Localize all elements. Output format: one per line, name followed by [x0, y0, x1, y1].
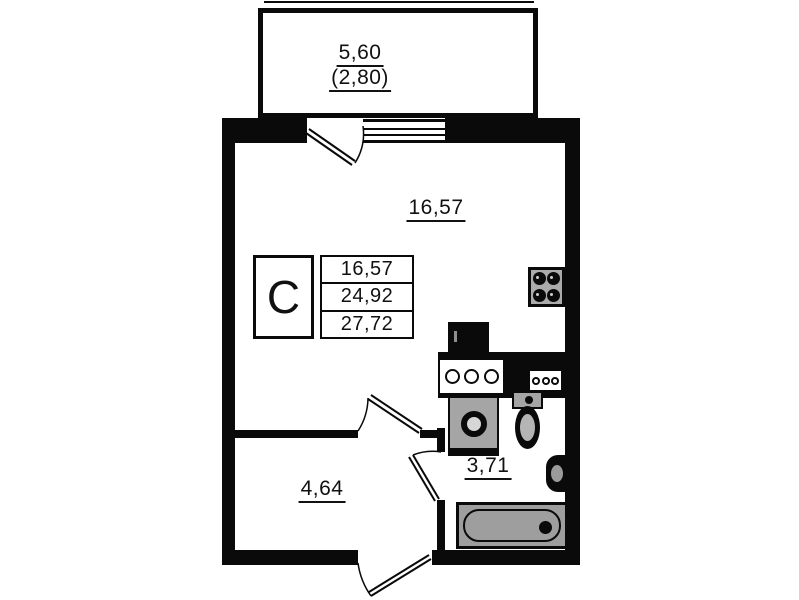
toilet-bowl-inner [520, 414, 535, 441]
wall-top-right [445, 118, 580, 143]
wall-bottom-right [432, 550, 580, 565]
apartment-type-badge: C [253, 255, 314, 339]
floor-plan: 5,60 (2,80) 16,57 4,64 3,71 C 16,57 24,9… [0, 0, 799, 600]
wall-bathroom-west-stub [437, 428, 445, 452]
stove-burner [533, 289, 546, 302]
stove-burner [547, 272, 560, 285]
kitchen-sink-icon [448, 322, 489, 352]
wall-right [565, 118, 580, 565]
balcony-door [306, 126, 364, 165]
washbasin-bowl [551, 465, 563, 482]
kitchen-sink-tap [454, 331, 457, 342]
hallway-area-label: 4,64 [299, 477, 346, 503]
legend-apartment-area: 24,92 [320, 282, 414, 311]
ventilation-shaft-left [438, 358, 505, 395]
washing-machine-icon [448, 396, 499, 456]
balcony [258, 8, 538, 118]
stove-burner [547, 289, 560, 302]
vent-duct [532, 377, 540, 385]
wall-hallway [235, 430, 358, 438]
bathroom-door [409, 451, 441, 501]
vent-duct [542, 377, 550, 385]
ventilation-shaft-right [528, 369, 563, 392]
toilet-flush-button [525, 396, 533, 404]
vent-duct [484, 369, 499, 384]
wall-hallway-jamb [420, 430, 437, 438]
toilet-icon [515, 406, 540, 449]
wall-bathroom-west [437, 500, 445, 552]
bathroom-area-label: 3,71 [465, 454, 512, 480]
window-pane-line [363, 128, 445, 130]
washbasin-icon [546, 455, 568, 492]
balcony-parapet-line [264, 1, 534, 3]
wall-left [222, 118, 235, 565]
living-room-area-label: 16,57 [406, 196, 465, 222]
legend-living-area: 16,57 [320, 255, 414, 284]
vent-duct [464, 369, 479, 384]
wall-bottom-left [222, 550, 358, 565]
window [363, 119, 445, 143]
bathtub-drain [539, 521, 552, 534]
legend-total-area: 27,72 [320, 310, 414, 339]
entrance-door [358, 555, 431, 596]
washing-machine-base [450, 448, 497, 454]
balcony-area-coefficient-label: (2,80) [329, 66, 391, 92]
vent-duct [551, 377, 559, 385]
bathtub-icon [456, 502, 568, 549]
window-pane-line [363, 134, 445, 136]
washing-machine-drum [461, 411, 487, 437]
stove-icon [528, 267, 565, 307]
hallway-door [358, 395, 422, 433]
vent-duct [445, 369, 460, 384]
legend: C 16,57 24,92 27,72 [253, 255, 414, 339]
balcony-area-label: 5,60 [337, 41, 384, 67]
stove-burner [533, 272, 546, 285]
